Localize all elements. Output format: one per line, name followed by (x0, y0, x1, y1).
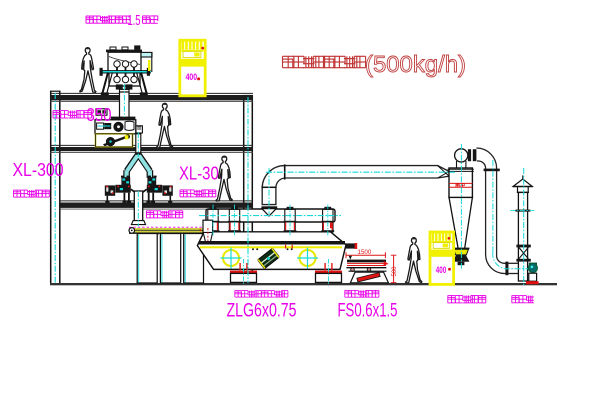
svg-text:400: 400 (436, 265, 447, 275)
svg-text:(500kg/h): (500kg/h) (365, 51, 466, 77)
svg-text:XL-300: XL-300 (13, 160, 64, 180)
svg-text:1.5: 1.5 (128, 12, 141, 29)
svg-text:1500: 1500 (358, 249, 372, 256)
svg-text:FS0.6x1.5: FS0.6x1.5 (338, 301, 398, 322)
svg-text:350: 350 (87, 104, 112, 125)
svg-text:ZLG6x0.75: ZLG6x0.75 (227, 301, 297, 322)
svg-text:400: 400 (186, 72, 198, 83)
svg-text:500: 500 (392, 266, 398, 277)
